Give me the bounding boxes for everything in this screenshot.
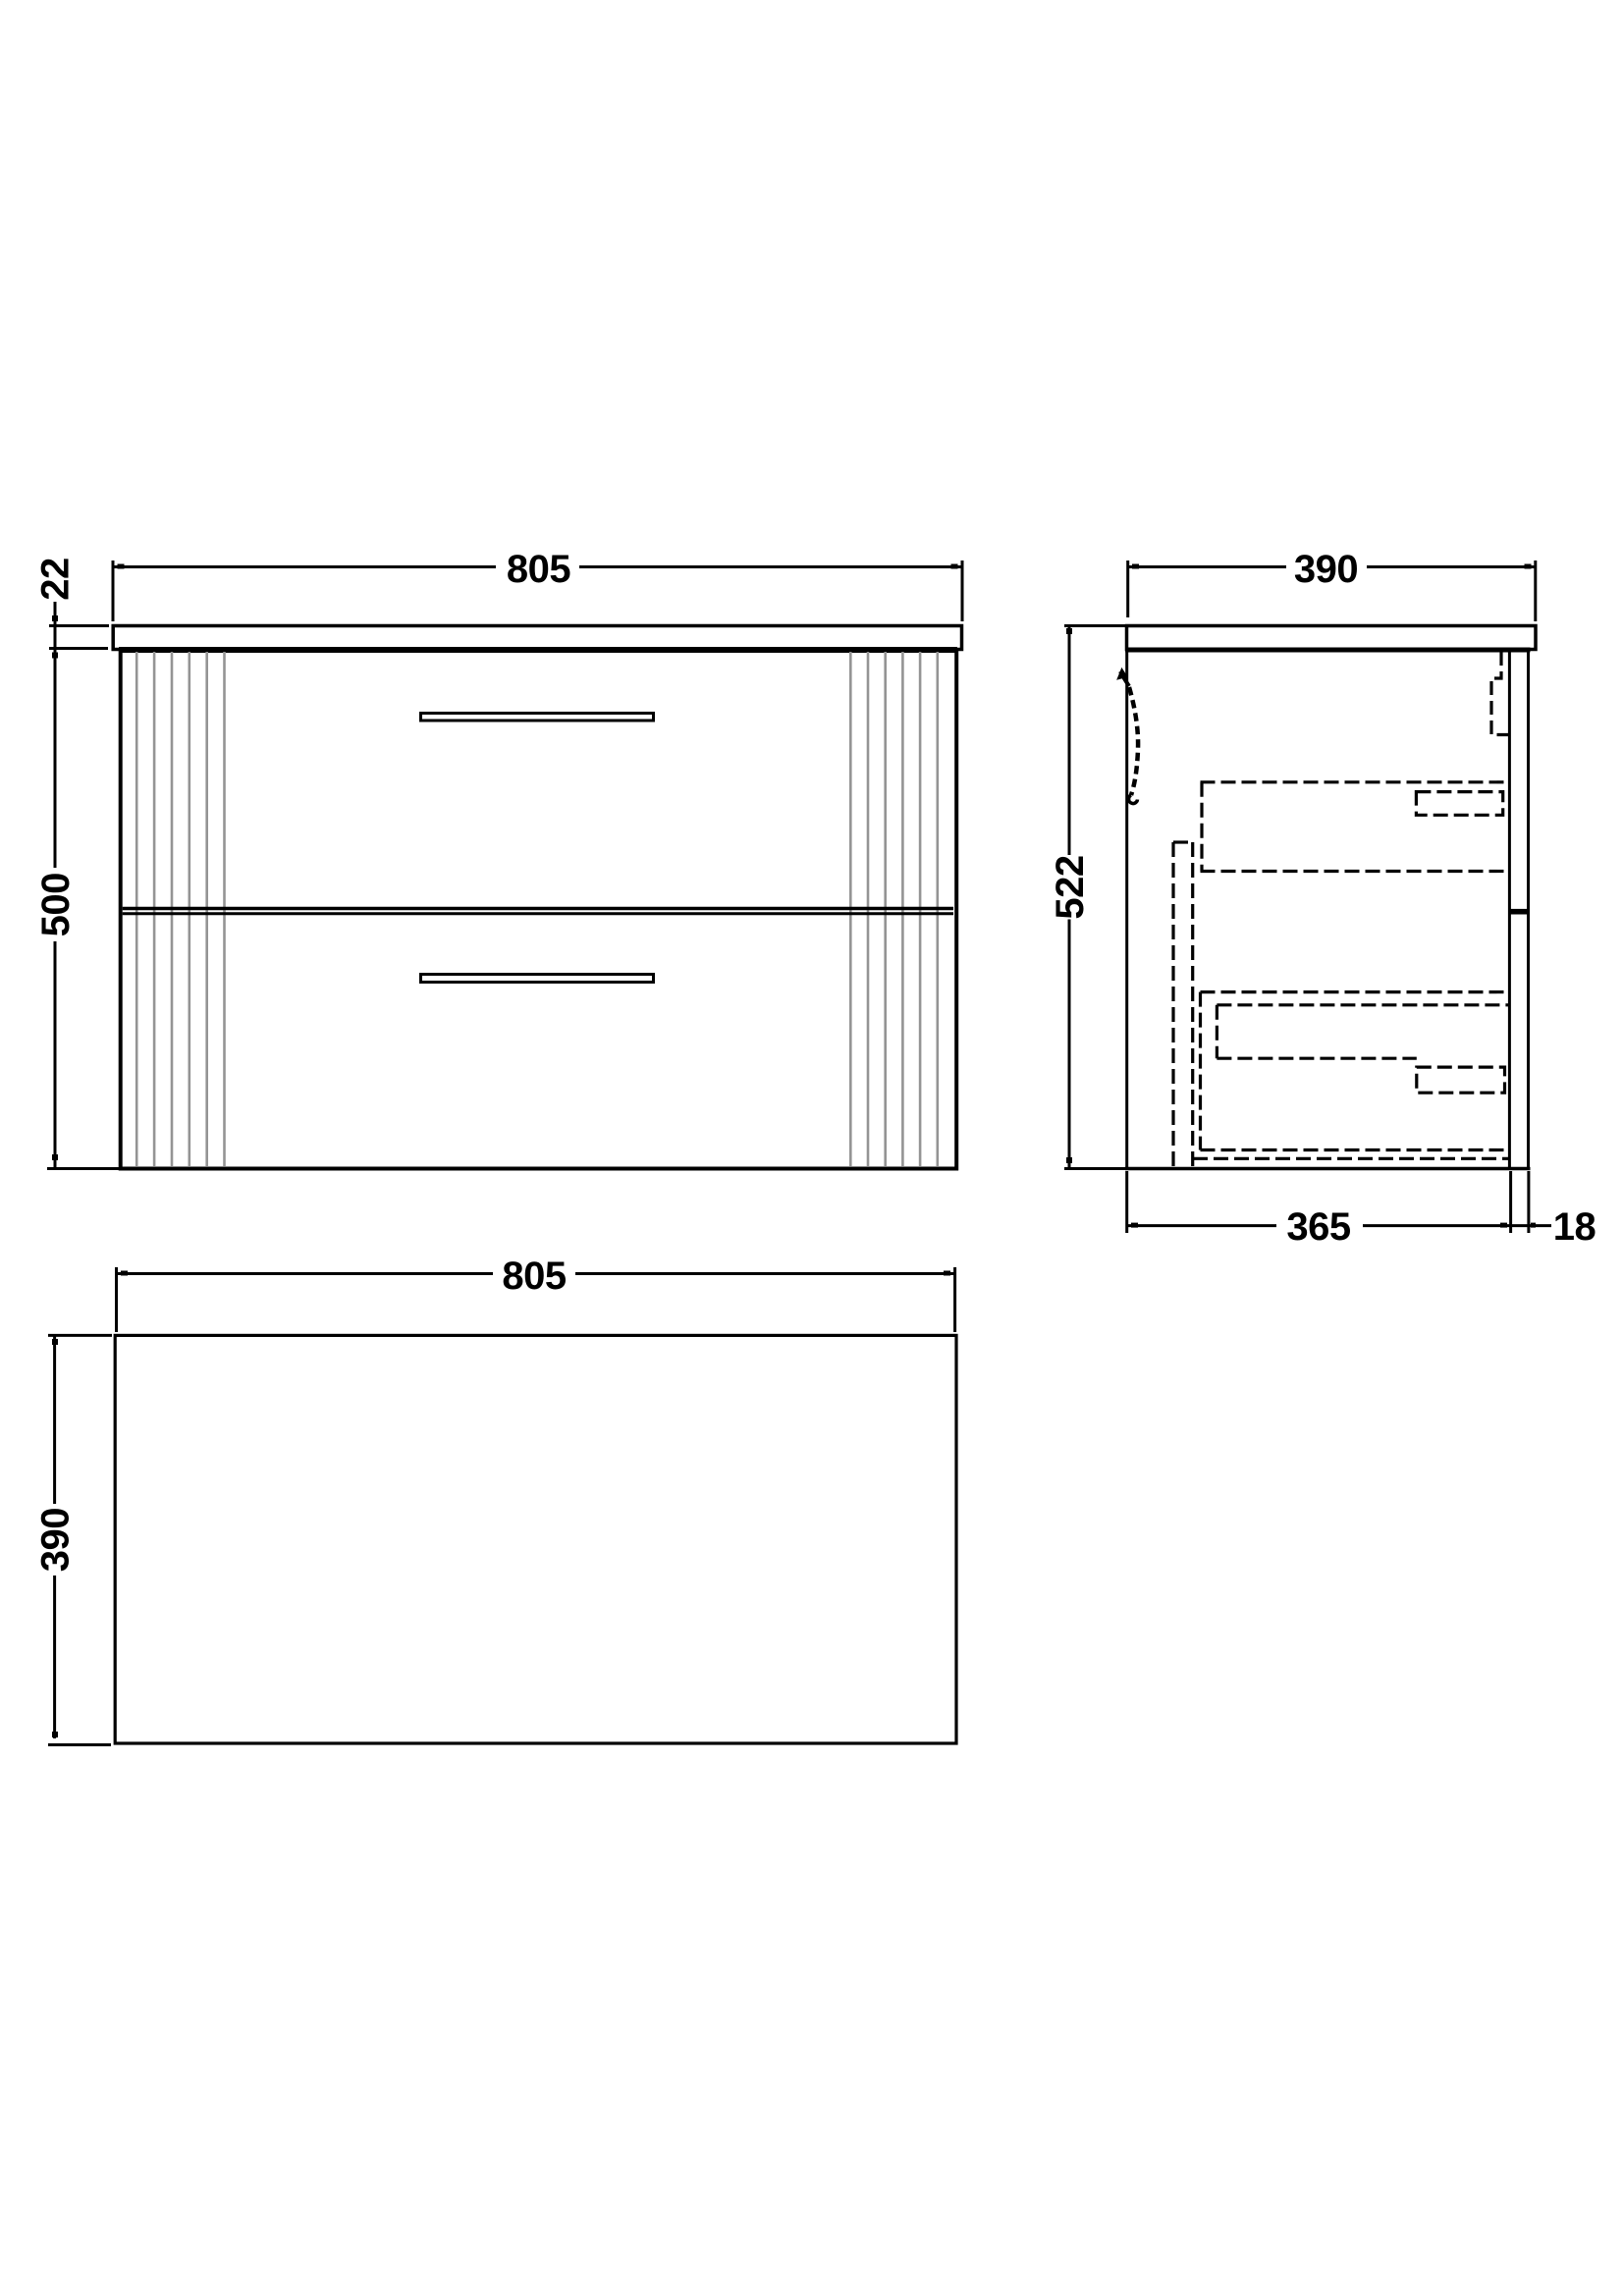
svg-text:500: 500: [34, 873, 78, 936]
svg-text:365: 365: [1286, 1205, 1350, 1249]
svg-text:805: 805: [507, 548, 570, 591]
svg-text:390: 390: [34, 1508, 78, 1572]
svg-text:390: 390: [1294, 548, 1358, 591]
svg-text:522: 522: [1049, 855, 1092, 919]
svg-text:18: 18: [1553, 1205, 1596, 1249]
svg-text:22: 22: [34, 558, 78, 601]
svg-text:805: 805: [502, 1255, 566, 1298]
